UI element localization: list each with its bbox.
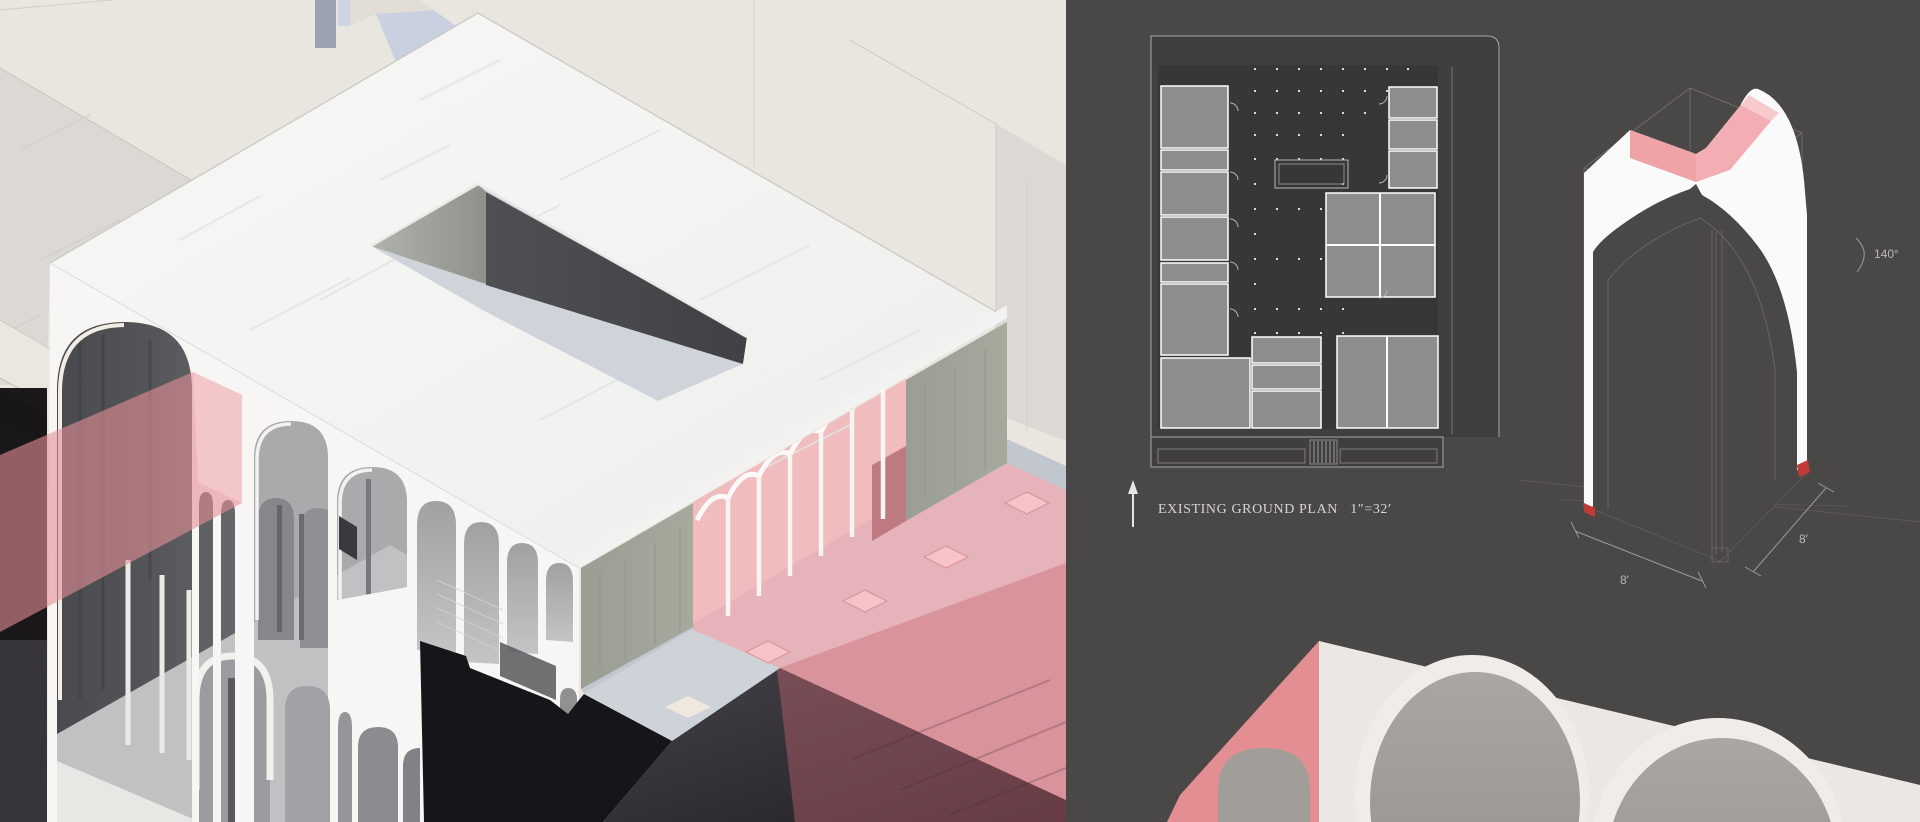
svg-text:140°: 140° (1874, 247, 1899, 261)
svg-text:EXISTING GROUND PLAN 1″=32′: EXISTING GROUND PLAN 1″=32′ (1158, 502, 1392, 517)
svg-text:8′: 8′ (1799, 532, 1809, 546)
svg-text:8′: 8′ (1620, 573, 1630, 587)
